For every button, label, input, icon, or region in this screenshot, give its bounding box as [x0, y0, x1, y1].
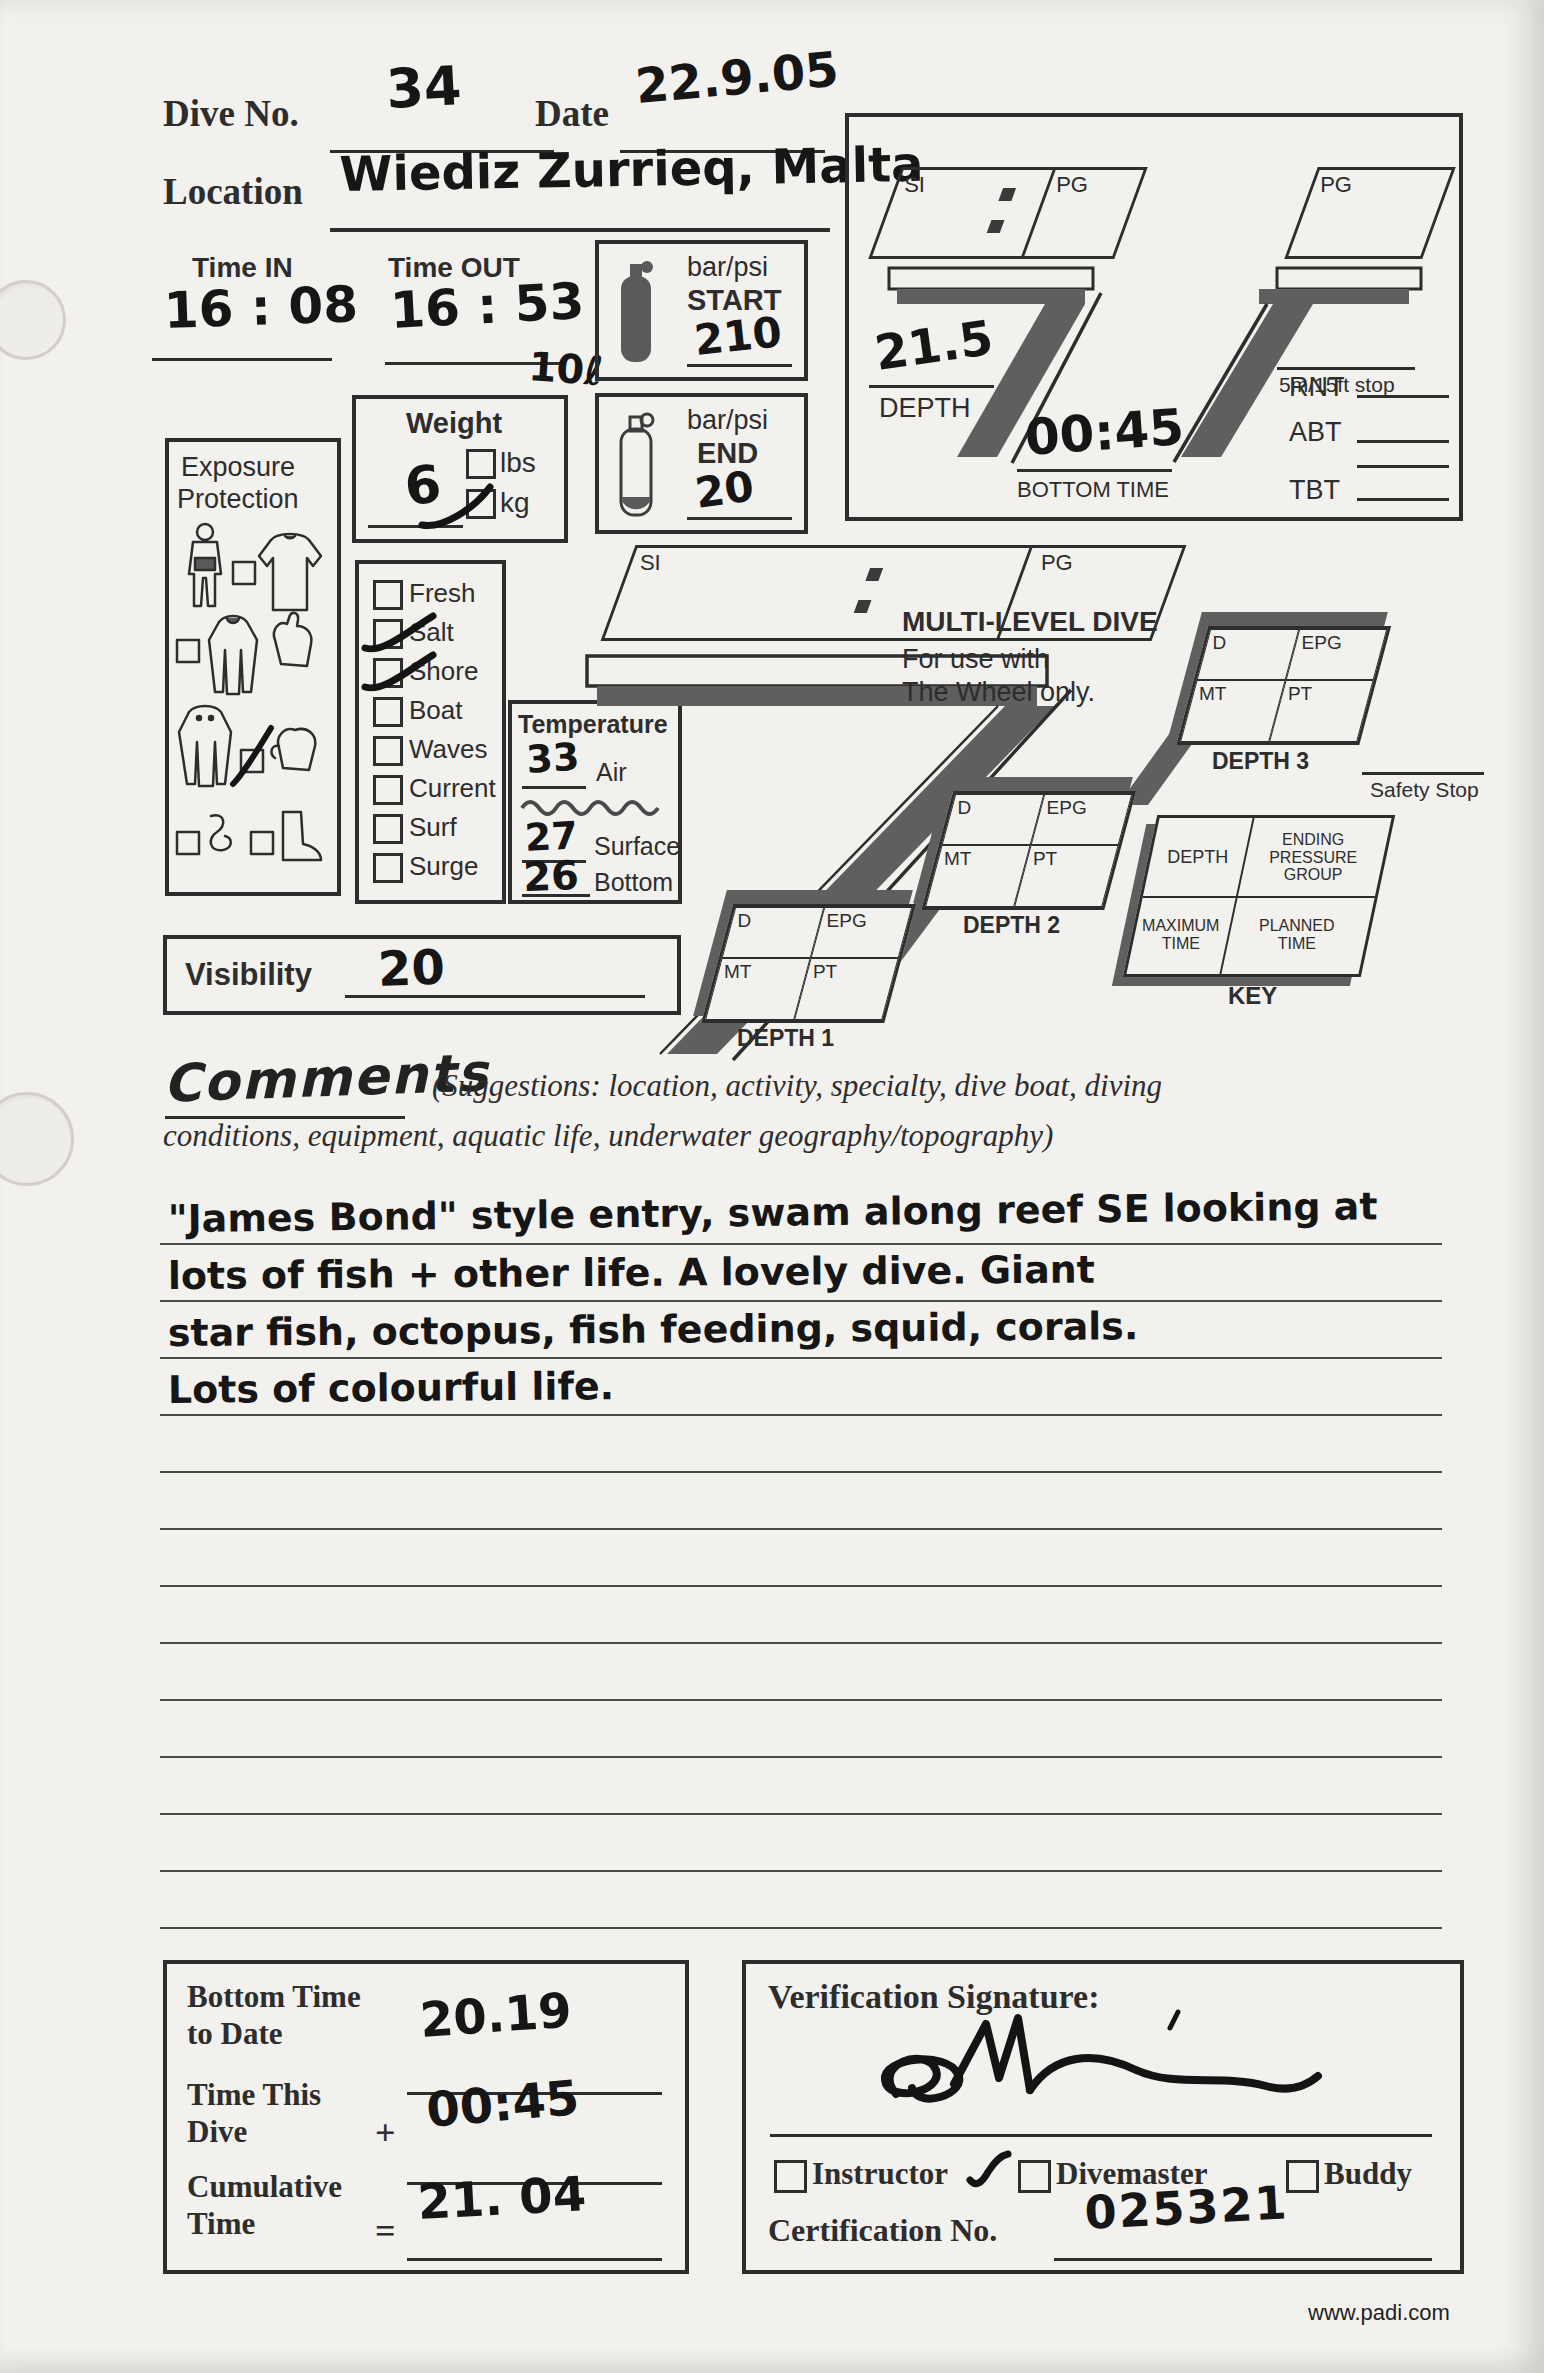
cell-mt-label: MT [724, 961, 751, 983]
repetitive-pressure-group-cell: PG [1284, 167, 1455, 259]
ruled-line [160, 1699, 1442, 1701]
tbt-label: TBT [1289, 475, 1340, 506]
underline [152, 358, 332, 361]
multilevel-pg-label: PG [1041, 550, 1073, 576]
safety-stop-label: Safety Stop [1370, 778, 1479, 802]
cell-mt-label: MT [944, 848, 971, 870]
cell-mt-label: MT [1199, 683, 1226, 705]
rnt-line [1357, 395, 1449, 398]
depth-label: DEPTH [879, 393, 971, 424]
underline [1054, 2258, 1432, 2261]
ruled-line [160, 1471, 1442, 1473]
pg-repeat-label: PG [1320, 172, 1352, 198]
bottom-time-value: 00:45 [1023, 398, 1186, 467]
surf-label: Surf [409, 812, 457, 843]
time-out-value: 16 : 53 [389, 272, 586, 340]
waves-checkbox [373, 736, 403, 766]
cell-pt-label: PT [1032, 848, 1056, 870]
current-label: Current [409, 773, 496, 804]
key-max-time-label: MAXIMUM TIME [1141, 917, 1221, 952]
ruled-line [160, 1813, 1442, 1815]
cell-d-label: D [958, 797, 972, 819]
exposure-suit-icons [175, 522, 327, 882]
surface-interval-pressure-group-cells: SI PG [868, 167, 1147, 259]
key-epg-label: ENDING PRESSURE GROUP [1269, 831, 1359, 884]
pressure-end-value: 20 [692, 461, 757, 518]
cell-pt-label: PT [812, 961, 836, 983]
instructor-label: Instructor [812, 2156, 948, 2192]
totals-box: Bottom Time to Date 20.19 Time This Dive… [163, 1960, 689, 2274]
date-label: Date [535, 92, 609, 135]
depth1-grid: D EPG MT PT [693, 890, 913, 1016]
depth2-label: DEPTH 2 [963, 912, 1060, 939]
weight-title: Weight [406, 407, 502, 440]
pg-label: PG [1057, 172, 1089, 198]
colon-dot [986, 220, 1004, 233]
dive-no-label: Dive No. [163, 92, 299, 135]
buddy-label: Buddy [1324, 2156, 1412, 2192]
current-checkbox [373, 775, 403, 805]
si-label: SI [904, 172, 925, 198]
punch-hole [0, 280, 66, 360]
comments-suggestions-1: (Suggestions: location, activity, specia… [432, 1068, 1162, 1104]
kg-checkmark [418, 481, 496, 535]
pressure-end-box: bar/psi END 20 [595, 393, 808, 534]
ruled-line [160, 1927, 1442, 1929]
dive-profile-box: SI PG PG 5m/15ft stop 21.5 DEPTH 00:45 B… [845, 113, 1463, 521]
pressure-start-value: 210 [692, 307, 784, 365]
ruled-line [160, 1585, 1442, 1587]
bottom-time-label: BOTTOM TIME [1017, 477, 1169, 503]
ruled-line [160, 1300, 1442, 1302]
time-this-dive-value: 00:45 [424, 2069, 581, 2138]
visibility-value: 20 [377, 939, 446, 997]
comments-suggestions-2: conditions, equipment, aquatic life, und… [163, 1118, 1053, 1154]
ruled-line [160, 1642, 1442, 1644]
divemaster-checkbox [1018, 2160, 1051, 2193]
instructor-checkbox [774, 2160, 807, 2193]
comment-line: star fish, octopus, fish feeding, squid,… [168, 1304, 1139, 1355]
tank-volume-note: 10ℓ [527, 343, 605, 394]
pressure-start-box: bar/psi START 210 [595, 240, 808, 381]
verification-box: Verification Signature: Instructor Divem… [742, 1960, 1464, 2274]
shore-checkmark [361, 651, 437, 697]
key-box: DEPTH ENDING PRESSURE GROUP MAXIMUM TIME… [1123, 815, 1395, 977]
underline [869, 385, 994, 388]
cumulative-time-label: Cumulative Time [187, 2168, 367, 2242]
cumulative-time-value: 21. 04 [416, 2165, 587, 2230]
location-value: Wiediz Zurrieq, Malta [339, 136, 924, 202]
padi-website: www.padi.com [1308, 2300, 1450, 2326]
punch-hole [0, 1092, 74, 1186]
ruled-line [160, 1528, 1442, 1530]
boat-label: Boat [409, 695, 463, 726]
ruled-line [160, 1243, 1442, 1245]
key-depth-label: DEPTH [1167, 847, 1228, 868]
cell-d-label: D [1213, 632, 1227, 654]
colon-dot [998, 188, 1016, 201]
location-label: Location [163, 170, 303, 213]
abt-label: ABT [1289, 417, 1342, 448]
plus-sign: + [375, 2112, 396, 2154]
abt-line [1357, 440, 1449, 443]
depth3-label: DEPTH 3 [1212, 748, 1309, 775]
time-this-dive-label: Time This Dive [187, 2076, 347, 2150]
weight-box: Weight lbs kg 6 [352, 395, 568, 543]
comment-line: "James Bond" style entry, swam along ree… [168, 1184, 1378, 1241]
signature [836, 2006, 1396, 2138]
lbs-checkbox [466, 449, 496, 479]
extra-line [1357, 465, 1449, 468]
instructor-checkmark [964, 2150, 1014, 2198]
bottom-time-to-date-label: Bottom Time to Date [187, 1978, 387, 2052]
buddy-checkbox [1286, 2160, 1319, 2193]
bottom-time-to-date-value: 20.19 [418, 1982, 573, 2048]
certification-no-label: Certification No. [768, 2212, 997, 2249]
time-in-value: 16 : 08 [163, 275, 359, 340]
depth3-grid-cells: D EPG MT PT [1176, 626, 1391, 745]
ruled-line [160, 1870, 1442, 1872]
comment-line: lots of fish + other life. A lovely dive… [168, 1248, 1095, 1298]
kg-label: kg [500, 487, 530, 519]
ruled-line [160, 1357, 1442, 1359]
dive-no-value: 34 [385, 54, 463, 121]
underline [687, 364, 792, 367]
key-planned-time-cell: PLANNED TIME [1219, 896, 1375, 974]
water-conditions-box: Fresh Salt Shore Boat Waves Current Surf… [355, 560, 506, 904]
cell-epg-label: EPG [1046, 797, 1086, 819]
exposure-protection-box: Exposure Protection [165, 438, 341, 896]
cell-epg-label: EPG [826, 910, 866, 932]
cell-divider [1021, 170, 1055, 256]
exposure-title-line2: Protection [177, 484, 299, 515]
underline [687, 517, 792, 520]
surge-checkbox [373, 853, 403, 883]
underline [330, 228, 830, 232]
tank-icon [613, 409, 659, 519]
certification-no-value: 025321 [1083, 2175, 1290, 2240]
cell-pt-label: PT [1287, 683, 1311, 705]
depth3-grid: D EPG MT PT [1168, 612, 1388, 738]
visibility-label: Visibility [185, 957, 312, 993]
date-value: 22.9.05 [633, 40, 841, 114]
colon-dot [865, 568, 883, 581]
underline [1017, 469, 1172, 472]
dive-log-page: Dive No. 34 Date 22.9.05 Location Wiediz… [0, 0, 1544, 2373]
depth2-grid: D EPG MT PT [913, 777, 1133, 903]
safety-stop-line [1277, 367, 1415, 370]
tank-icon [613, 256, 659, 364]
equals-sign: = [375, 2210, 396, 2252]
tbt-line [1357, 498, 1449, 501]
boat-checkbox [373, 697, 403, 727]
depth1-label: DEPTH 1 [737, 1025, 834, 1052]
waves-label: Waves [409, 734, 488, 765]
pressure-unit-label: bar/psi [687, 252, 768, 283]
cell-epg-label: EPG [1301, 632, 1341, 654]
fresh-label: Fresh [409, 578, 475, 609]
ruled-line [160, 1756, 1442, 1758]
fresh-checkbox [373, 580, 403, 610]
surf-checkbox [373, 814, 403, 844]
ruled-line [160, 1414, 1442, 1416]
underline [407, 2258, 662, 2261]
safety-stop-line [1362, 772, 1484, 775]
pressure-unit-label: bar/psi [687, 405, 768, 436]
comment-line: Lots of colourful life. [168, 1364, 615, 1412]
key-planned-time-label: PLANNED TIME [1252, 917, 1342, 952]
depth1-grid-cells: D EPG MT PT [701, 904, 916, 1023]
lbs-label: lbs [500, 447, 536, 479]
key-label: KEY [1228, 982, 1277, 1010]
key-epg-cell: ENDING PRESSURE GROUP [1235, 818, 1391, 898]
multilevel-si-label: SI [640, 550, 661, 576]
surge-label: Surge [409, 851, 478, 882]
rnt-label: RNT [1289, 372, 1345, 403]
cell-d-label: D [738, 910, 752, 932]
exposure-title-line1: Exposure [181, 452, 295, 483]
depth2-grid-cells: D EPG MT PT [921, 791, 1136, 910]
